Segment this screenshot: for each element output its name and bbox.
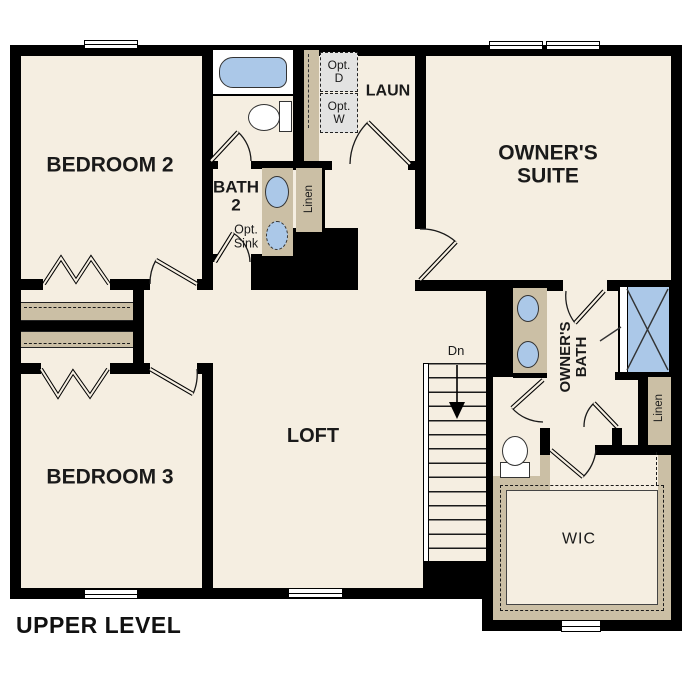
opt-sink-label-line2: Sink — [234, 237, 258, 251]
wall-right — [671, 45, 682, 631]
closet-shelf-bedroom3 — [21, 331, 133, 348]
wall-bedroom2-bottom-a — [21, 279, 43, 290]
owners-bath-label: OWNER'S BATH — [558, 321, 590, 392]
wall-wic-top — [595, 445, 682, 455]
wic-rod-dashed-segment — [656, 452, 657, 485]
closet-rod-dash-bedroom2 — [24, 307, 130, 308]
wall-bedroom3-top-b — [110, 363, 150, 374]
wall-core-left — [251, 254, 262, 290]
toilet-tank — [279, 101, 292, 132]
owners-suite-label-line2: SUITE — [498, 165, 598, 188]
shower — [618, 285, 671, 374]
optional-dryer-label-2: D — [335, 72, 344, 85]
wall-bedroom2-bottom-c — [197, 279, 213, 290]
optional-dryer-box: Opt. D — [320, 52, 358, 92]
closet-shelf-bedroom2 — [21, 302, 133, 321]
wc-toilet-bowl — [502, 436, 528, 466]
plan-title: UPPER LEVEL — [16, 612, 181, 639]
optional-washer-box: Opt. W — [320, 93, 358, 133]
wall-bedroom3-top-a — [21, 363, 41, 374]
wall-laundry-bottom-b — [408, 161, 415, 170]
wall-closet-right — [133, 283, 144, 374]
wall-bath2-entry-stub — [206, 254, 218, 262]
wall-bath2-laundry — [293, 45, 304, 170]
stairs-railing — [423, 363, 429, 562]
wall-stairs-right — [486, 288, 513, 377]
bedroom2-label: BEDROOM 2 — [46, 155, 173, 178]
opt-sink-label: Opt. Sink — [234, 224, 258, 251]
loft-label: LOFT — [287, 426, 339, 448]
linen-upper-label: Linen — [303, 185, 315, 213]
wall-core-mid — [262, 256, 293, 290]
optional-washer-label-2: W — [333, 113, 344, 126]
bedroom3-label: BEDROOM 3 — [46, 467, 173, 490]
wic-rod-dashed-line — [500, 485, 664, 611]
bath2-label-line2: 2 — [213, 197, 259, 215]
wall-bedroom3-right — [202, 363, 213, 599]
wall-bedroom2-bottom-b — [110, 279, 150, 290]
wall-linen2-left — [638, 377, 648, 445]
bath2-label-line1: BATH — [213, 179, 259, 197]
owners-bath-label-line1: OWNER'S — [558, 321, 574, 392]
wall-bottom — [10, 588, 490, 599]
laundry-label: LAUN — [366, 82, 410, 99]
owners-suite-label: OWNER'S SUITE — [498, 142, 598, 187]
laundry-counter-dash — [308, 54, 309, 128]
bath2-label: BATH 2 — [213, 179, 259, 216]
shower-entry-strip — [620, 287, 628, 372]
wall-left — [10, 45, 21, 599]
window-bedroom2-top — [84, 40, 138, 49]
wall-core-main — [293, 228, 358, 290]
wall-bath2-mid-stub — [206, 161, 218, 169]
owners-bath-sink-1 — [517, 295, 539, 322]
window-suite-top-2 — [546, 41, 600, 50]
owners-bath-label-line2: BATH — [574, 321, 590, 392]
stairs-dn-label: Dn — [448, 344, 465, 358]
optional-dryer-label-1: Opt. — [328, 59, 351, 72]
wall-wc-left — [486, 377, 493, 477]
closet-rod-dash-bedroom3 — [24, 343, 130, 344]
wall-closet-divider — [21, 321, 133, 331]
owners-bath-sink-2 — [517, 341, 539, 368]
window-wic-bottom — [561, 620, 601, 632]
owners-suite-label-line1: OWNER'S — [498, 142, 598, 165]
linen-lower-label: Linen — [653, 394, 665, 422]
stairs-treads — [429, 363, 486, 562]
bathtub — [219, 57, 287, 88]
wall-suite-left — [415, 45, 426, 229]
laundry-counter — [304, 50, 319, 161]
opt-sink-label-line1: Opt. — [234, 224, 258, 238]
wall-under-stairs — [423, 561, 486, 589]
window-loft-bottom — [288, 588, 343, 598]
toilet-bowl — [248, 104, 280, 131]
floor-plan: Opt. D Opt. W — [0, 0, 687, 687]
optional-washer-label-1: Opt. — [328, 100, 351, 113]
bath2-sink — [265, 176, 289, 208]
window-bedroom3-bottom — [84, 589, 138, 599]
wall-linen1-right — [322, 165, 325, 232]
wic-label: WIC — [562, 530, 596, 547]
window-suite-top-1 — [489, 41, 543, 50]
bath2-optional-sink — [266, 221, 288, 250]
